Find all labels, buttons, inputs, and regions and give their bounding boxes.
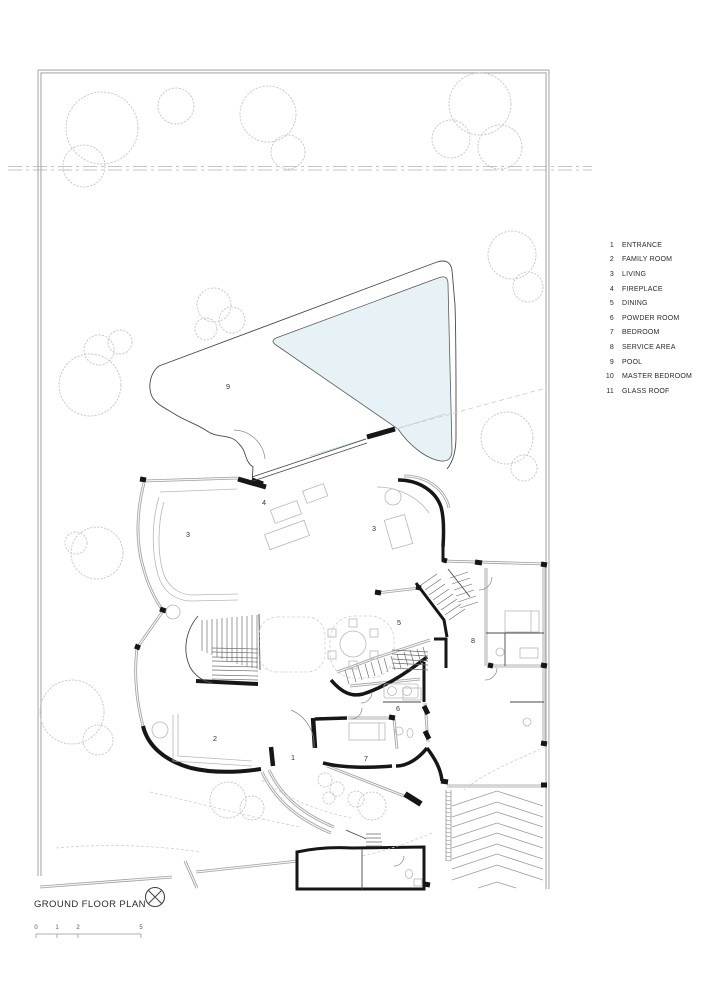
scale-tick-0: 0: [34, 925, 38, 931]
legend-item-label: ENTRANCE: [622, 242, 662, 249]
legend-item-label: FAMILY ROOM: [622, 256, 672, 263]
legend-item: 1ENTRANCE: [604, 242, 692, 249]
drawing-title: GROUND FLOOR PLAN: [34, 899, 146, 910]
scale-tick-1: 1: [55, 925, 59, 931]
pool-water: [273, 277, 452, 461]
legend-item-label: MASTER BEDROOM: [622, 373, 692, 380]
legend-item: 11GLASS ROOF: [604, 388, 692, 395]
legend-item-number: 5: [604, 300, 614, 307]
legend-item-number: 6: [604, 315, 614, 322]
scale-tick-5: 5: [139, 925, 143, 931]
legend-item-number: 3: [604, 271, 614, 278]
title-block: GROUND FLOOR PLAN: [34, 899, 146, 910]
legend-item: 7BEDROOM: [604, 329, 692, 336]
legend-item-label: POWDER ROOM: [622, 315, 679, 322]
legend-item-label: DINING: [622, 300, 648, 307]
legend: 1ENTRANCE 2FAMILY ROOM 3LIVING 4FIREPLAC…: [604, 238, 692, 399]
legend-item-label: SERVICE AREA: [622, 344, 676, 351]
pool-area: [150, 261, 546, 484]
room-label-entrance: 1: [291, 753, 295, 762]
legend-item-number: 2: [604, 256, 614, 263]
legend-item-label: LIVING: [622, 271, 646, 278]
legend-item: 4FIREPLACE: [604, 286, 692, 293]
room-label-dining: 5: [397, 618, 401, 627]
site-boundary: [40, 72, 548, 890]
legend-item-label: BEDROOM: [622, 329, 660, 336]
legend-item: 10MASTER BEDROOM: [604, 373, 692, 380]
drawing-sheet: 9 4 3 3 5 8 2 1 7 6 1ENTRANCE 2FAMILY RO…: [0, 0, 707, 1000]
legend-item-number: 11: [604, 388, 614, 395]
legend-item-number: 10: [604, 373, 614, 380]
room-label-living-right: 3: [372, 524, 376, 533]
room-label-bedroom: 7: [364, 754, 368, 763]
legend-item: 9POOL: [604, 359, 692, 366]
legend-item: 5DINING: [604, 300, 692, 307]
floor-plan-drawing: 9 4 3 3 5 8 2 1 7 6: [0, 0, 707, 1000]
legend-item: 3LIVING: [604, 271, 692, 278]
legend-item: 2FAMILY ROOM: [604, 256, 692, 263]
north-arrow-icon: [146, 888, 165, 907]
room-label-pool: 9: [226, 382, 230, 391]
legend-item-number: 9: [604, 359, 614, 366]
legend-item-number: 8: [604, 344, 614, 351]
scale-bar: 0 1 2 5: [30, 920, 160, 942]
room-label-service-area: 8: [471, 636, 475, 645]
house-gray-walls: [40, 476, 545, 888]
driveway: [446, 790, 543, 888]
furniture: [152, 484, 539, 766]
dashed-guides: [56, 616, 545, 856]
legend-item-label: GLASS ROOF: [622, 388, 670, 395]
room-label-living-left: 3: [186, 530, 190, 539]
legend-item-label: POOL: [622, 359, 642, 366]
legend-item-number: 7: [604, 329, 614, 336]
legend-item-number: 4: [604, 286, 614, 293]
room-label-powder-room: 6: [396, 704, 400, 713]
legend-item: 8SERVICE AREA: [604, 344, 692, 351]
legend-item-label: FIREPLACE: [622, 286, 663, 293]
trees: [40, 73, 543, 820]
legend-item: 6POWDER ROOM: [604, 315, 692, 322]
room-label-family-room: 2: [213, 734, 217, 743]
gatehouse: [297, 830, 424, 889]
scale-tick-2: 2: [76, 925, 80, 931]
stairs: [202, 572, 478, 684]
legend-item-number: 1: [604, 242, 614, 249]
room-label-fireplace: 4: [262, 498, 266, 507]
